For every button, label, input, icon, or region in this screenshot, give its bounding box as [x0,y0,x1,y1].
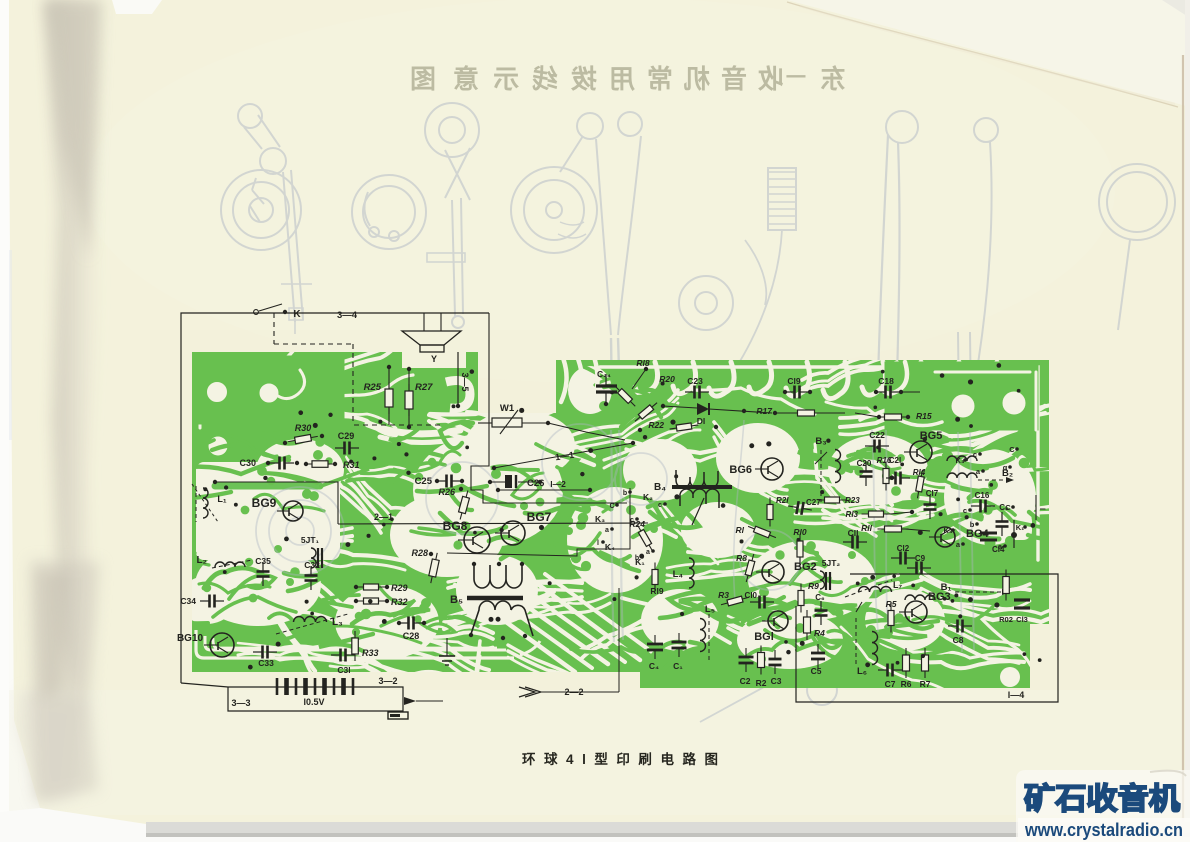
svg-text:3—5: 3—5 [460,372,470,391]
svg-text:B₄: B₄ [654,482,666,493]
svg-text:l—2: l—2 [550,479,566,489]
svg-text:BG3: BG3 [928,591,951,603]
svg-text:C33: C33 [258,658,274,668]
svg-text:Cl7: Cl7 [926,489,939,498]
svg-text:收: 收 [758,64,784,94]
svg-text:5JT₁: 5JT₁ [301,535,320,545]
svg-text:一: 一 [786,67,806,89]
svg-text:C2l: C2l [889,456,901,465]
svg-text:3—4: 3—4 [337,310,358,321]
svg-text:机: 机 [684,64,710,94]
svg-text:C26: C26 [527,478,544,489]
svg-text:L₂: L₂ [196,555,207,566]
svg-text:3—3: 3—3 [231,698,250,708]
svg-text:图: 图 [410,64,436,94]
svg-text:R27: R27 [415,382,433,393]
svg-text:K₄: K₄ [605,542,615,552]
svg-text:L₅: L₅ [705,604,715,615]
svg-text:b: b [623,490,627,497]
svg-text:R02: R02 [999,615,1013,624]
svg-text:l: l [597,540,599,547]
svg-text:R5: R5 [886,599,897,609]
svg-text:B₅: B₅ [450,594,463,606]
svg-text:C8: C8 [953,635,964,645]
svg-text:a: a [605,527,609,534]
svg-text:l: l [1038,508,1045,510]
svg-text:Cl2: Cl2 [897,544,910,553]
svg-text:R2: R2 [756,678,767,688]
svg-text:线: 线 [532,64,558,94]
svg-text:C5: C5 [811,666,822,676]
svg-text:Cll: Cll [848,528,859,538]
svg-text:R29: R29 [391,583,408,593]
svg-text:Cl4: Cl4 [992,545,1005,554]
svg-text:环球4l型印刷电路图: 环球4l型印刷电路图 [522,751,718,767]
svg-text:Y: Y [431,354,437,364]
svg-text:3—2: 3—2 [378,676,397,686]
svg-text:l0.5V: l0.5V [303,697,324,707]
svg-text:C28: C28 [403,631,420,641]
svg-text:R6: R6 [901,679,912,689]
svg-text:K₁: K₁ [1016,523,1025,532]
svg-text:C3: C3 [771,676,782,686]
svg-text:C32: C32 [304,560,320,570]
svg-text:W1: W1 [500,403,515,414]
svg-text:东: 东 [820,64,846,94]
svg-text:R4: R4 [814,628,825,638]
svg-text:Rl3: Rl3 [846,510,859,519]
svg-text:C29: C29 [338,431,355,441]
svg-text:常: 常 [647,64,673,94]
svg-text:R2l: R2l [776,496,789,505]
svg-text:L₇: L₇ [893,580,902,590]
svg-text:C₂₄: C₂₄ [597,369,611,379]
svg-text:R8: R8 [736,553,747,563]
svg-text:Cl0: Cl0 [745,591,758,600]
svg-text:R32: R32 [391,597,408,607]
svg-text:Cl3: Cl3 [1016,615,1028,624]
svg-text:Rl4: Rl4 [913,468,926,477]
svg-text:a: a [646,549,650,556]
svg-text:Rl9: Rl9 [650,586,664,596]
svg-text:C: C [609,503,614,510]
svg-text:www.crystalradio.cn: www.crystalradio.cn [1024,820,1183,840]
svg-text:BG7: BG7 [527,510,552,524]
svg-text:意: 意 [453,64,479,94]
svg-text:C16: C16 [975,491,990,500]
svg-text:BG9: BG9 [252,496,277,510]
svg-text:L₃: L₃ [332,617,343,628]
svg-text:Rl: Rl [736,525,745,535]
svg-text:R23: R23 [845,496,860,505]
svg-text:R3: R3 [718,590,729,600]
svg-text:R17: R17 [756,406,773,416]
svg-text:C9: C9 [915,554,926,563]
svg-text:BG8: BG8 [443,519,468,533]
svg-text:C23: C23 [687,376,703,386]
svg-text:矿石收音机: 矿石收音机 [1024,782,1180,816]
svg-text:音: 音 [721,64,747,94]
svg-text:R28: R28 [411,548,428,558]
svg-text:2—1: 2—1 [374,512,393,522]
svg-text:R24: R24 [629,519,645,529]
svg-text:L₆: L₆ [857,666,867,677]
svg-text:R25: R25 [364,382,382,393]
svg-text:BGl: BGl [754,631,774,643]
svg-text:Rll: Rll [861,523,873,533]
svg-text:用: 用 [609,64,635,94]
svg-text:BG2: BG2 [794,561,817,573]
svg-text:5JT₂: 5JT₂ [822,558,841,568]
svg-text:C20: C20 [857,459,872,468]
svg-text:L₄: L₄ [673,569,684,580]
svg-text:拨: 拨 [570,64,597,94]
svg-text:K: K [293,309,301,320]
svg-text:C: C [1009,445,1015,454]
svg-text:C35: C35 [255,556,271,566]
svg-text:C18: C18 [878,376,894,386]
svg-text:Rl8: Rl8 [636,358,650,368]
svg-text:C22: C22 [869,430,885,440]
svg-text:K₃: K₃ [595,514,605,524]
svg-text:c: c [658,502,662,509]
svg-text:C27: C27 [806,498,821,507]
svg-text:R22: R22 [648,420,664,430]
svg-text:K₂: K₂ [643,492,653,502]
svg-text:BG10: BG10 [177,633,204,644]
svg-text:B₂: B₂ [1002,468,1013,479]
svg-text:Cl9: Cl9 [787,376,801,386]
svg-text:b: b [635,555,639,562]
svg-text:B₃: B₃ [815,436,826,447]
svg-text:R7: R7 [920,679,931,689]
svg-text:R9: R9 [808,581,819,591]
svg-text:R15: R15 [916,411,932,421]
svg-text:R30: R30 [295,423,312,433]
svg-text:C3l: C3l [337,665,350,675]
svg-text:C₆: C₆ [999,503,1009,512]
svg-text:C2: C2 [740,676,751,686]
svg-text:R33: R33 [362,648,379,658]
svg-text:R26: R26 [438,487,456,497]
svg-text:c: c [963,506,967,515]
svg-text:L₁: L₁ [217,494,226,504]
svg-text:示: 示 [493,64,519,94]
svg-text:Rl0: Rl0 [793,527,807,537]
svg-text:C₁: C₁ [673,661,683,671]
svg-text:C₄: C₄ [649,661,659,671]
svg-text:C34: C34 [180,596,196,606]
svg-text:C25: C25 [415,476,433,487]
svg-text:l—4: l—4 [1008,690,1025,700]
svg-text:C₆: C₆ [815,593,825,602]
svg-text:C30: C30 [239,458,256,468]
svg-text:BG6: BG6 [729,464,752,476]
svg-text:C7: C7 [885,679,896,689]
svg-text:2—2: 2—2 [564,687,583,697]
